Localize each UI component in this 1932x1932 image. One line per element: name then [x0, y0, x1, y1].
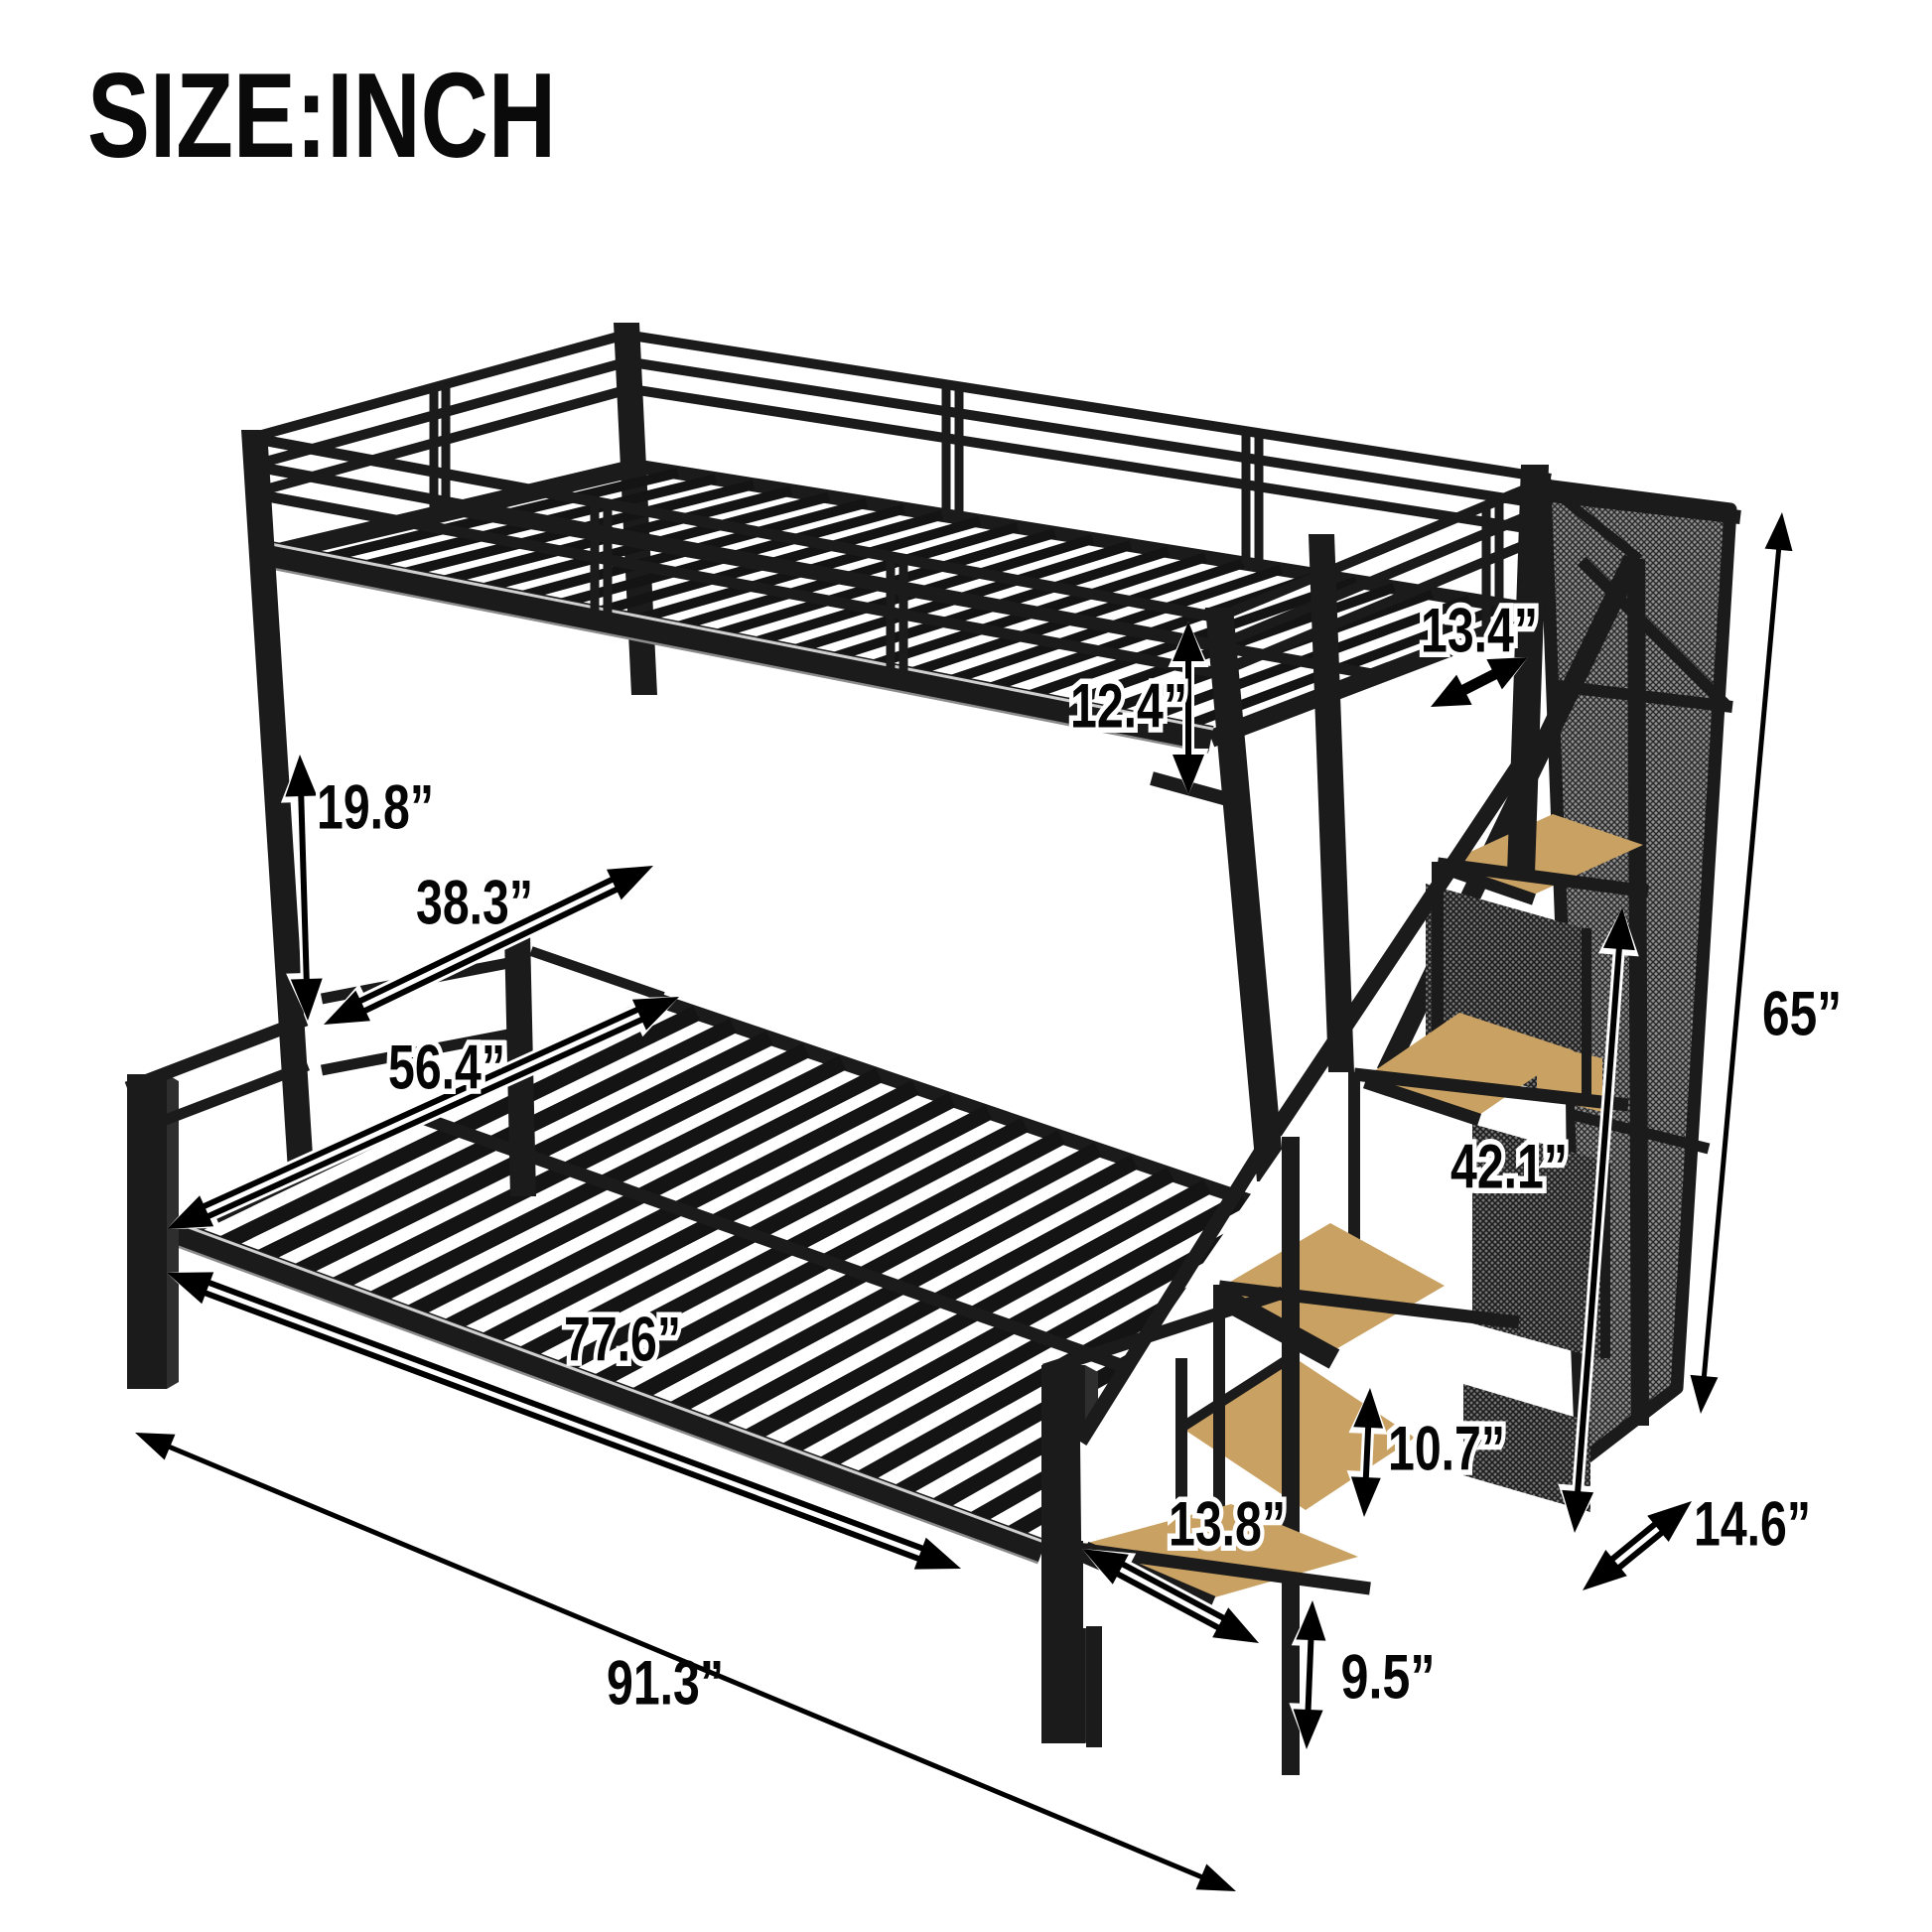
svg-text:65”: 65” — [1762, 980, 1842, 1049]
svg-text:9.5”: 9.5” — [1341, 1643, 1436, 1713]
svg-text:56.4”: 56.4” — [388, 1034, 505, 1103]
svg-text:13.8”: 13.8” — [1169, 1490, 1286, 1560]
svg-text:12.4”: 12.4” — [1070, 672, 1187, 742]
svg-text:42.1”: 42.1” — [1450, 1133, 1568, 1202]
svg-text:10.7”: 10.7” — [1388, 1415, 1505, 1484]
svg-text:SIZE:INCH: SIZE:INCH — [87, 48, 556, 183]
svg-text:19.8”: 19.8” — [317, 773, 434, 843]
svg-text:91.3”: 91.3” — [607, 1649, 724, 1719]
svg-text:13.4”: 13.4” — [1421, 597, 1538, 666]
svg-text:77.6”: 77.6” — [564, 1306, 681, 1375]
svg-text:14.6”: 14.6” — [1694, 1490, 1811, 1560]
svg-text:38.3”: 38.3” — [416, 869, 533, 938]
